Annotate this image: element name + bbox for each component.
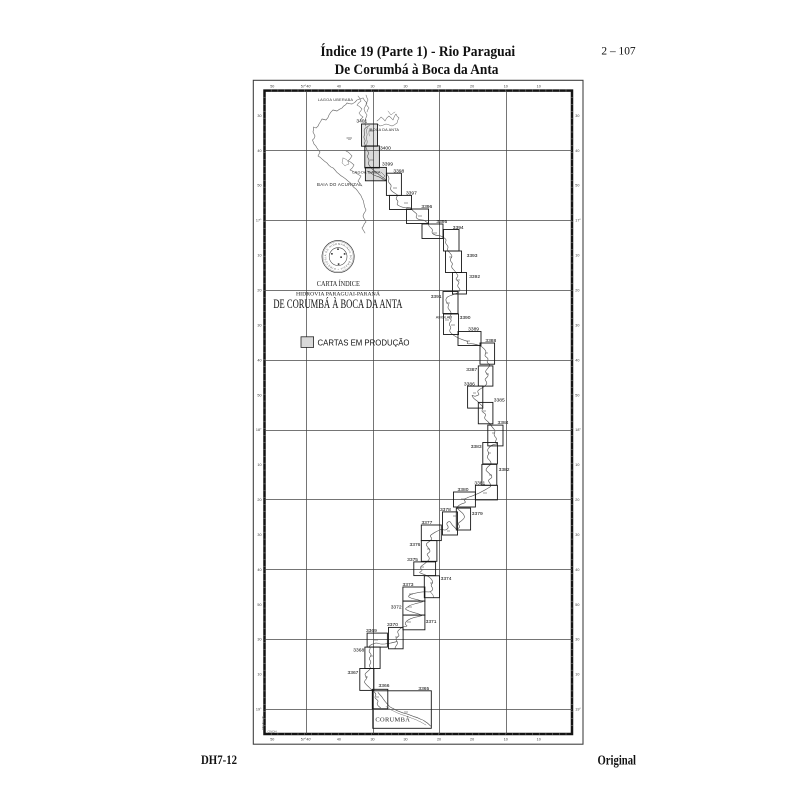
svg-text:3389: 3389	[468, 327, 479, 333]
svg-text:Índice 19 (Parte 1) - Rio Para: Índice 19 (Parte 1) - Rio Paraguai	[320, 43, 515, 60]
svg-text:2 – 107: 2 – 107	[601, 45, 635, 57]
svg-text:3399: 3399	[382, 161, 393, 167]
svg-text:40: 40	[257, 568, 261, 572]
svg-text:3382: 3382	[499, 467, 510, 473]
svg-text:40: 40	[575, 568, 579, 572]
svg-text:50: 50	[575, 393, 579, 397]
svg-text:CORUMBÁ: CORUMBÁ	[375, 715, 410, 723]
svg-text:30: 30	[370, 85, 374, 89]
svg-text:10: 10	[537, 738, 541, 742]
svg-text:20: 20	[257, 498, 261, 502]
svg-text:3401: 3401	[356, 119, 367, 125]
svg-text:40: 40	[337, 85, 341, 89]
svg-text:20: 20	[575, 289, 579, 293]
svg-text:50: 50	[270, 738, 274, 742]
svg-text:30: 30	[575, 114, 579, 118]
svg-text:50: 50	[257, 393, 261, 397]
svg-text:3376: 3376	[410, 542, 421, 548]
svg-text:57°40': 57°40'	[301, 85, 312, 89]
svg-text:40: 40	[257, 358, 261, 362]
svg-text:3387: 3387	[466, 367, 477, 373]
svg-text:DE CORUMBÁ À BOCA DA ANTA: DE CORUMBÁ À BOCA DA ANTA	[273, 297, 402, 311]
svg-text:20: 20	[575, 498, 579, 502]
svg-text:10: 10	[257, 254, 261, 258]
svg-text:3377: 3377	[421, 520, 432, 526]
svg-text:10: 10	[504, 85, 508, 89]
svg-text:CINDI4: CINDI4	[268, 730, 278, 734]
svg-text:3396: 3396	[421, 204, 432, 210]
svg-text:10: 10	[575, 254, 579, 258]
svg-text:CARTA ÍNDICE: CARTA ÍNDICE	[317, 278, 360, 288]
svg-text:20: 20	[470, 738, 474, 742]
svg-text:LAGOA UBERABA: LAGOA UBERABA	[318, 97, 354, 102]
svg-text:19°: 19°	[575, 708, 581, 712]
svg-text:3383: 3383	[471, 444, 482, 450]
svg-text:3373: 3373	[403, 582, 414, 588]
svg-text:40: 40	[575, 358, 579, 362]
svg-text:18°: 18°	[575, 428, 581, 432]
svg-text:3375: 3375	[407, 557, 418, 563]
svg-text:10: 10	[257, 673, 261, 677]
svg-text:30: 30	[257, 533, 261, 537]
svg-text:3366: 3366	[379, 683, 390, 689]
svg-text:50: 50	[575, 603, 579, 607]
svg-text:BOCA DA ANTA: BOCA DA ANTA	[370, 128, 399, 132]
svg-text:10: 10	[575, 463, 579, 467]
svg-text:10: 10	[575, 673, 579, 677]
svg-text:3391: 3391	[431, 294, 442, 300]
svg-text:10: 10	[257, 463, 261, 467]
svg-text:40: 40	[575, 149, 579, 153]
svg-text:57°40': 57°40'	[301, 738, 312, 742]
svg-text:20: 20	[437, 738, 441, 742]
svg-text:3388: 3388	[485, 338, 496, 344]
svg-text:19°: 19°	[256, 708, 262, 712]
svg-text:50: 50	[257, 184, 261, 188]
svg-text:10: 10	[504, 738, 508, 742]
svg-text:40: 40	[337, 738, 341, 742]
svg-text:50: 50	[257, 603, 261, 607]
svg-text:3378: 3378	[440, 507, 451, 513]
svg-text:50: 50	[575, 184, 579, 188]
svg-text:30: 30	[257, 323, 261, 327]
svg-text:3365: 3365	[418, 686, 429, 692]
svg-text:3381: 3381	[474, 480, 485, 486]
svg-text:18°: 18°	[256, 428, 262, 432]
svg-text:30: 30	[257, 638, 261, 642]
svg-text:3384: 3384	[498, 420, 509, 426]
svg-text:30: 30	[575, 638, 579, 642]
svg-text:3369: 3369	[366, 628, 377, 634]
svg-text:Original: Original	[598, 753, 637, 768]
svg-text:30: 30	[370, 738, 374, 742]
svg-text:20: 20	[257, 289, 261, 293]
svg-text:3393: 3393	[467, 253, 478, 259]
svg-text:30: 30	[575, 323, 579, 327]
svg-text:3367: 3367	[348, 670, 359, 676]
svg-text:3370: 3370	[387, 622, 398, 628]
svg-text:3374: 3374	[441, 576, 452, 582]
svg-text:3386: 3386	[464, 381, 475, 387]
svg-text:10: 10	[537, 85, 541, 89]
svg-text:3390: 3390	[460, 315, 471, 321]
svg-text:3398: 3398	[393, 169, 404, 175]
svg-text:17°: 17°	[256, 219, 262, 223]
svg-text:BAIA DO ACURIZAL: BAIA DO ACURIZAL	[317, 182, 362, 187]
svg-text:3371: 3371	[426, 619, 437, 625]
svg-text:3400: 3400	[380, 146, 391, 152]
svg-text:30: 30	[575, 533, 579, 537]
svg-text:3372: 3372	[391, 604, 402, 610]
svg-text:3397: 3397	[406, 191, 417, 197]
svg-text:LAGOA GAÍBA: LAGOA GAÍBA	[352, 170, 381, 175]
svg-text:40: 40	[257, 149, 261, 153]
svg-text:3379: 3379	[472, 511, 483, 517]
svg-text:DH7-12: DH7-12	[201, 752, 237, 767]
svg-text:30: 30	[257, 114, 261, 118]
svg-text:20: 20	[470, 85, 474, 89]
svg-text:3368: 3368	[353, 647, 364, 653]
svg-text:CARTAS EM PRODUÇÃO: CARTAS EM PRODUÇÃO	[318, 338, 410, 348]
svg-text:30: 30	[403, 738, 407, 742]
svg-text:20: 20	[437, 85, 441, 89]
svg-text:PARAGUAI: PARAGUAI	[261, 716, 265, 730]
svg-text:AMOLAR: AMOLAR	[436, 314, 453, 319]
svg-text:De Corumbá à Boca da Anta: De Corumbá à Boca da Anta	[335, 62, 500, 78]
svg-text:50: 50	[270, 85, 274, 89]
svg-text:17°: 17°	[575, 219, 581, 223]
svg-text:3394: 3394	[453, 225, 464, 231]
svg-text:3385: 3385	[494, 398, 505, 404]
svg-text:3392: 3392	[469, 274, 480, 280]
svg-text:30: 30	[403, 85, 407, 89]
svg-text:3380: 3380	[458, 487, 469, 493]
svg-text:3395: 3395	[436, 219, 447, 225]
